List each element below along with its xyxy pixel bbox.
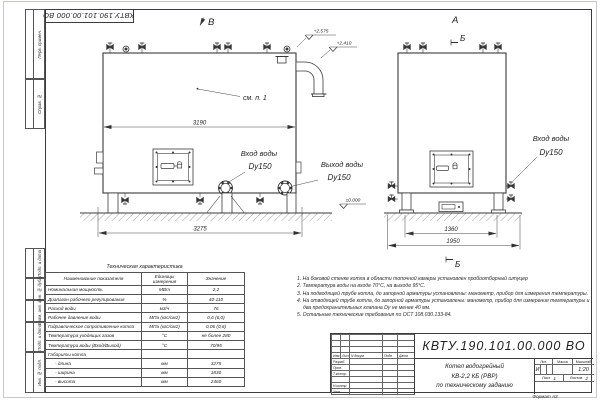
cell: мм — [142, 368, 188, 377]
sheet-cell: Лист 1 — [535, 375, 564, 382]
cell: - высота — [46, 377, 142, 386]
sheets-label: Листов — [570, 376, 582, 380]
cell: Рабочее давление воды — [46, 313, 142, 322]
note-5: 5. Остальные технические требования по О… — [297, 312, 590, 319]
view-a-label: А — [451, 15, 458, 26]
outlet-front-size: Dy150 — [327, 173, 351, 182]
title-block: Изм. Лист N докум Подп Дата Разраб. Пров… — [330, 333, 592, 393]
cell: 76 — [188, 304, 245, 313]
scale-value: 1:20 — [573, 365, 594, 375]
view-b-label: В — [208, 17, 215, 28]
cell: °С — [142, 331, 188, 340]
cell: Температура воды (Вход/Выход) — [46, 340, 142, 349]
sign-label: Утв. — [332, 389, 350, 395]
dim-3275: 3275 — [193, 227, 207, 233]
front-view — [80, 43, 332, 221]
vent-cap-icon — [284, 46, 290, 52]
top-air-valves-front — [107, 43, 290, 53]
note-3: 3. На подводящей трубе котла, до запорно… — [297, 291, 590, 298]
signature-table: Изм. Лист N докум Подп Дата Разраб. Пров… — [331, 334, 415, 395]
elev-0000: ±0.000 — [346, 198, 361, 204]
table-row: Гидравлическое сопротивление котлаМПа (к… — [46, 322, 245, 331]
col-header: Наименование показателя — [46, 273, 142, 286]
inlet-side-size: Dy150 — [539, 148, 563, 157]
table-row: Температура уходящих газов°Сне более 280 — [46, 331, 245, 340]
ground-side — [384, 213, 522, 221]
drain-valves-front — [122, 193, 263, 204]
cell — [188, 350, 245, 359]
table-row: Номинальная мощностьМВт2,2 — [46, 285, 245, 294]
cell: - ширина — [46, 368, 142, 377]
cell: мм — [142, 377, 188, 386]
drawing-sheet: КВТУ.190.101.00.000 ВО Перв. примен. Спр… — [0, 0, 600, 400]
lit-mass-scale-grid: Лит. Масса Масштаб И 1:20 Лист 1 Листов … — [534, 359, 593, 394]
cell: 0,06 (0,6) — [188, 322, 245, 331]
cell: МВт — [142, 285, 188, 294]
elev-2410: +2.410 — [337, 41, 352, 47]
section-b-label-top: Б — [460, 34, 465, 43]
note-4: 4. На отводящей трубе котла, до запорной… — [297, 298, 590, 311]
inlet-front-size: Dy150 — [248, 162, 272, 171]
cell: % — [142, 295, 188, 304]
cell: МПа (кгс/см2) — [142, 313, 188, 322]
table-row: Габариты котла — [46, 350, 245, 359]
doc-name-line2: КВ-2,2 КБ (РВР) — [451, 372, 497, 382]
cell: 2,2 — [188, 285, 245, 294]
dim-1360: 1360 — [444, 227, 458, 233]
cell: 70/95 — [188, 340, 245, 349]
note-2: 2. Температура воды на входе 70°С, на вы… — [297, 283, 590, 290]
format-label: Формат А3 — [498, 394, 592, 399]
doc-number: КВТУ.190.101.00.000 ВО — [414, 334, 593, 359]
cell: Температура уходящих газов — [46, 331, 142, 340]
see-note-callout: см. п. 1 — [243, 95, 267, 102]
cell: м3/ч — [142, 304, 188, 313]
cell: 2460 — [188, 377, 245, 386]
top-air-valves-side — [404, 43, 501, 53]
note-1: 1. На боковой стенке котла в области топ… — [297, 276, 590, 283]
cell: МПа (кгс/см2) — [142, 322, 188, 331]
cell: Расход воды — [46, 304, 142, 313]
cell: Номинальная мощность — [46, 285, 142, 294]
furnace-door-side — [430, 151, 473, 187]
technical-notes: 1. На боковой стенке котла в области топ… — [297, 276, 590, 319]
document-name: Котел водогрейный КВ-2,2 КБ (РВР) по тех… — [414, 359, 534, 394]
cell: Габариты котла — [46, 350, 142, 359]
cell: Гидравлическое сопротивление котла — [46, 322, 142, 331]
cell: 0,6 (6,0) — [188, 313, 245, 322]
sheets-cell: Листов 2 — [564, 375, 594, 382]
cell: 1830 — [188, 368, 245, 377]
dim-1950: 1950 — [446, 239, 460, 245]
sheets-value: 2 — [585, 376, 588, 381]
cell: не более 280 — [188, 331, 245, 340]
sheet-label: Лист — [542, 376, 550, 380]
doc-name-line3: по техническому заданию — [436, 381, 512, 391]
col-header: Единицы измерения — [142, 273, 188, 286]
table-row: Рабочее давление водыМПа (кгс/см2)0,6 (6… — [46, 313, 245, 322]
table-row: Температура воды (Вход/Выход)°С70/95 — [46, 340, 245, 349]
cell: °С — [142, 340, 188, 349]
sign-row: Утв. — [332, 389, 415, 395]
supports-side — [400, 193, 506, 213]
tech-characteristics-table: Наименование показателя Единицы измерени… — [45, 272, 245, 387]
table-row: - длинамм3275 — [46, 359, 245, 368]
col-header: Значение — [188, 273, 245, 286]
supports-front — [108, 193, 296, 213]
cell: - длина — [46, 359, 142, 368]
table-row: Диапазон рабочего регулирования%40-110 — [46, 295, 245, 304]
cell: Диапазон рабочего регулирования — [46, 295, 142, 304]
cell: 3275 — [188, 359, 245, 368]
table-row: - ширинамм1830 — [46, 368, 245, 377]
outlet-front-label: Выход воды — [321, 160, 364, 169]
furnace-door-front — [153, 149, 193, 185]
ground-front — [80, 213, 332, 221]
vent-cap-icon — [123, 46, 129, 52]
side-view — [384, 43, 522, 221]
cell: 40-110 — [188, 295, 245, 304]
inlet-side-label: Вход воды — [533, 134, 570, 143]
sheet-value: 1 — [553, 376, 556, 381]
cell: мм — [142, 359, 188, 368]
section-b-label-bottom: Б — [455, 260, 460, 269]
inlet-front-label: Вход воды — [241, 149, 278, 158]
dim-3190: 3190 — [193, 121, 207, 127]
cell — [142, 350, 188, 359]
elev-2575: +2.575 — [314, 29, 329, 35]
doc-name-line1: Котел водогрейный — [445, 362, 504, 372]
table-header-row: Наименование показателя Единицы измерени… — [46, 273, 245, 286]
table-row: Расход водым3/ч76 — [46, 304, 245, 313]
table-row: - высотамм2460 — [46, 377, 245, 386]
tech-table-title: Техническая характеристика — [45, 264, 244, 270]
